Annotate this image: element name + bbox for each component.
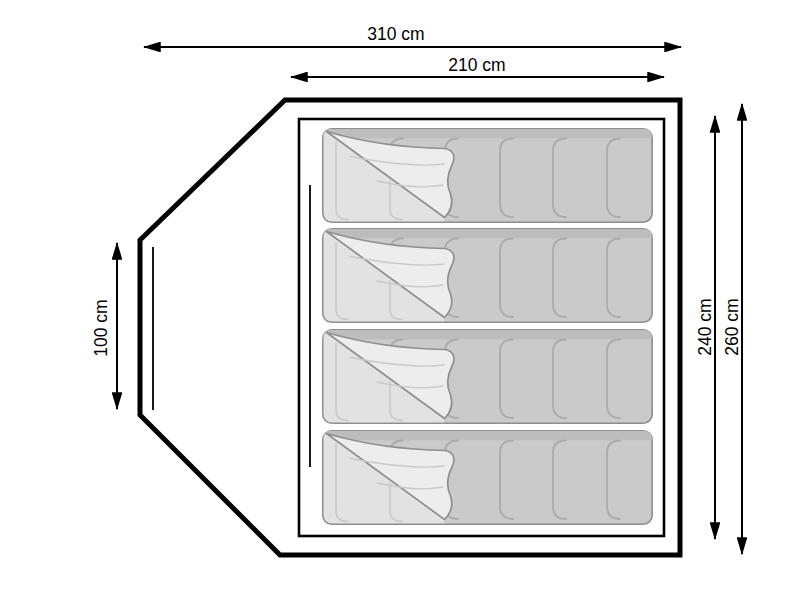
dim-inner-depth-label: 240 cm — [695, 298, 715, 355]
dim-total-width-label: 310 cm — [367, 24, 424, 44]
dim-inner-width-label: 210 cm — [448, 55, 505, 75]
sleeping-bag-4 — [323, 431, 652, 524]
sleeping-bag-3 — [323, 330, 652, 423]
tent-floorplan-diagram: 310 cm 210 cm 100 cm 240 cm 260 cm — [0, 0, 800, 600]
tent-floorplan-page: 310 cm 210 cm 100 cm 240 cm 260 cm — [0, 0, 800, 600]
dim-total-depth-label: 260 cm — [722, 298, 742, 355]
sleeping-bag-1 — [323, 129, 652, 222]
sleeping-bag-2 — [323, 229, 652, 322]
dim-porch-depth-label: 100 cm — [91, 299, 111, 356]
